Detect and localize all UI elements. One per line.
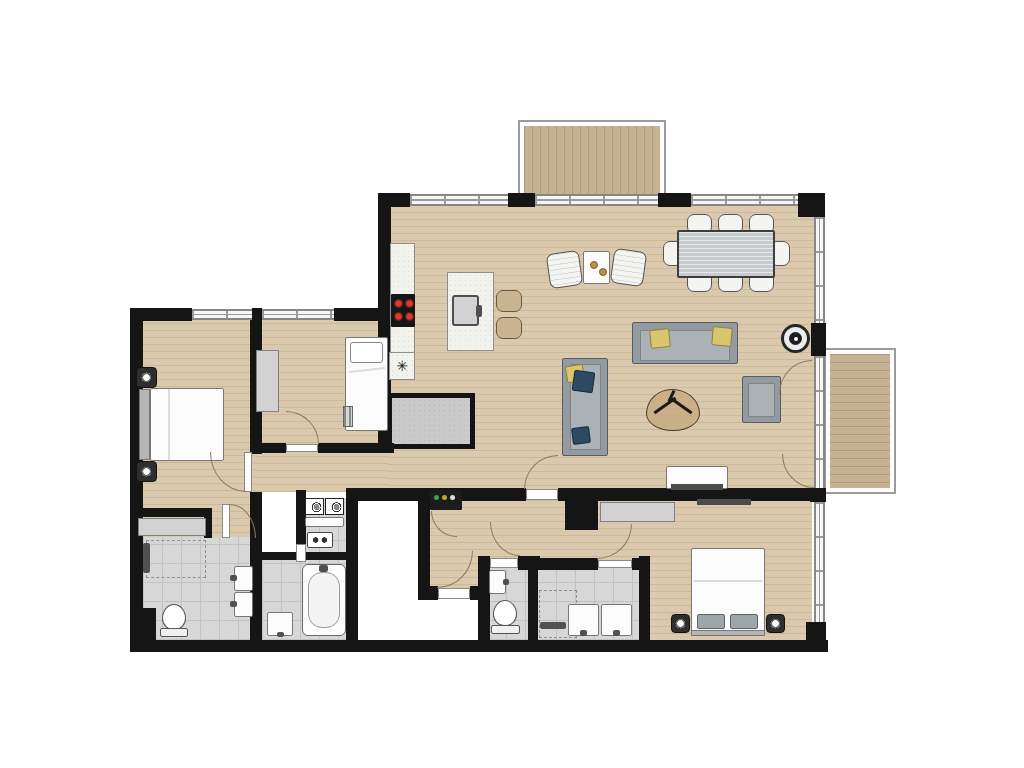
fireplace-dot [794,337,798,341]
laundry-door-threshold [296,544,306,562]
island-sink [452,295,479,326]
armchair-seat [748,383,775,417]
washing-machine [305,498,324,515]
basin-faucet [277,632,284,637]
sofa-pillow-navy [571,426,591,445]
toilet-tank-left [160,628,188,637]
master-bed-fold [168,389,170,460]
wc-toilet-tank [491,625,520,634]
wall-top-2 [508,193,535,207]
wall-leftwing-top-2 [334,308,394,321]
wall-bathright-top-b [632,558,650,570]
wall-hall-top-b [318,443,394,453]
sofa-pillow-gold [711,326,733,347]
dryer [325,498,344,515]
wall-bathright-right [639,556,650,652]
bar-stool [496,317,522,339]
master-headboard [139,389,150,460]
meter-cupboard [430,490,462,510]
window-top-2 [535,194,658,206]
boiler [307,532,333,548]
window-top-1 [410,194,508,206]
bedroom2-radiator [343,406,353,427]
bedroomright-dresser [600,502,675,522]
wall-master-bottom [130,508,212,517]
wall-laundry-right [346,488,358,652]
wall-bedroomright-corner-bot [806,622,826,642]
freezer: ✳ [389,352,415,380]
master-bed [150,388,224,461]
bathtub-faucet [319,565,328,572]
shower-fixture-right [540,622,566,629]
wall-column [565,494,598,530]
basin-faucet [580,630,587,636]
window-right-3 [814,502,825,622]
wall-hall-left [418,498,430,598]
wall-bedroomright-corner-top [810,488,826,502]
master-wardrobe [138,518,206,536]
window-top-3 [691,194,798,206]
window-right-1 [814,217,825,323]
appliance-front [305,517,344,527]
toilet-bowl-left [162,604,186,630]
shower-column-left [143,543,150,573]
wc-door-threshold [490,558,518,568]
master-nightstand-lamp [136,367,157,388]
wc-toilet-bowl [493,600,517,626]
bedroomright-nightstand-lamp [671,614,690,633]
window-left-1 [192,309,252,320]
shower-zone-left [146,540,206,578]
wall-hall-top-a [262,443,286,453]
meter-dot-white [450,495,455,500]
meter-dot-green [434,495,439,500]
burner [394,299,403,308]
bathtub-inner [308,572,340,628]
bar-stool [496,290,522,312]
living-hall-door-threshold [526,489,558,500]
bedroom2-pillow [350,342,383,363]
meter-dot-yellow [442,495,447,500]
cup [590,261,598,269]
lounge-chair [610,248,648,287]
wall-wc-bath-div [528,556,538,652]
master-nightstand-lamp [136,461,157,482]
basin-faucet [230,575,237,581]
basin-faucet [613,630,620,636]
bedroomright-bed-fold [694,580,762,582]
burner [405,312,414,321]
bedroomright-tv [697,499,751,505]
bedroomright-nightstand-lamp [766,614,785,633]
balcony-right-deck [830,354,890,488]
burner [405,299,414,308]
basin-faucet [503,579,509,585]
bathroom-left-door-leaf [222,504,230,538]
bedroom2-door-leaf [286,444,318,452]
bathroom-right-door-leaf [598,560,632,568]
bedroomright-headboard [691,630,765,636]
wall-bathright-top-a [538,558,598,570]
bedroomright-pillow [730,614,758,629]
dining-table [677,230,775,278]
bedroom2-wardrobe [256,350,279,412]
sofa-pillow-gold [649,328,671,349]
wall-top-corner [798,193,825,217]
entrance-door-threshold [438,588,470,599]
window-left-2 [262,309,334,320]
wall-top-3 [658,193,691,207]
storage-room [387,393,475,449]
tv-living [671,484,723,490]
floor-plan-canvas: ✳ [0,0,1024,768]
bedroomright-pillow [697,614,725,629]
wall-outer-bottom [130,640,828,652]
cup [599,268,607,276]
sink-faucet [476,305,482,317]
window-right-2 [814,356,825,488]
basin-faucet [230,601,237,607]
balcony-top-deck [524,126,660,194]
wall-right-block [811,323,826,356]
lounge-chair [546,250,584,289]
wall-entrance-a [418,586,438,600]
sofa-pillow-navy [572,370,596,394]
burner [394,312,403,321]
